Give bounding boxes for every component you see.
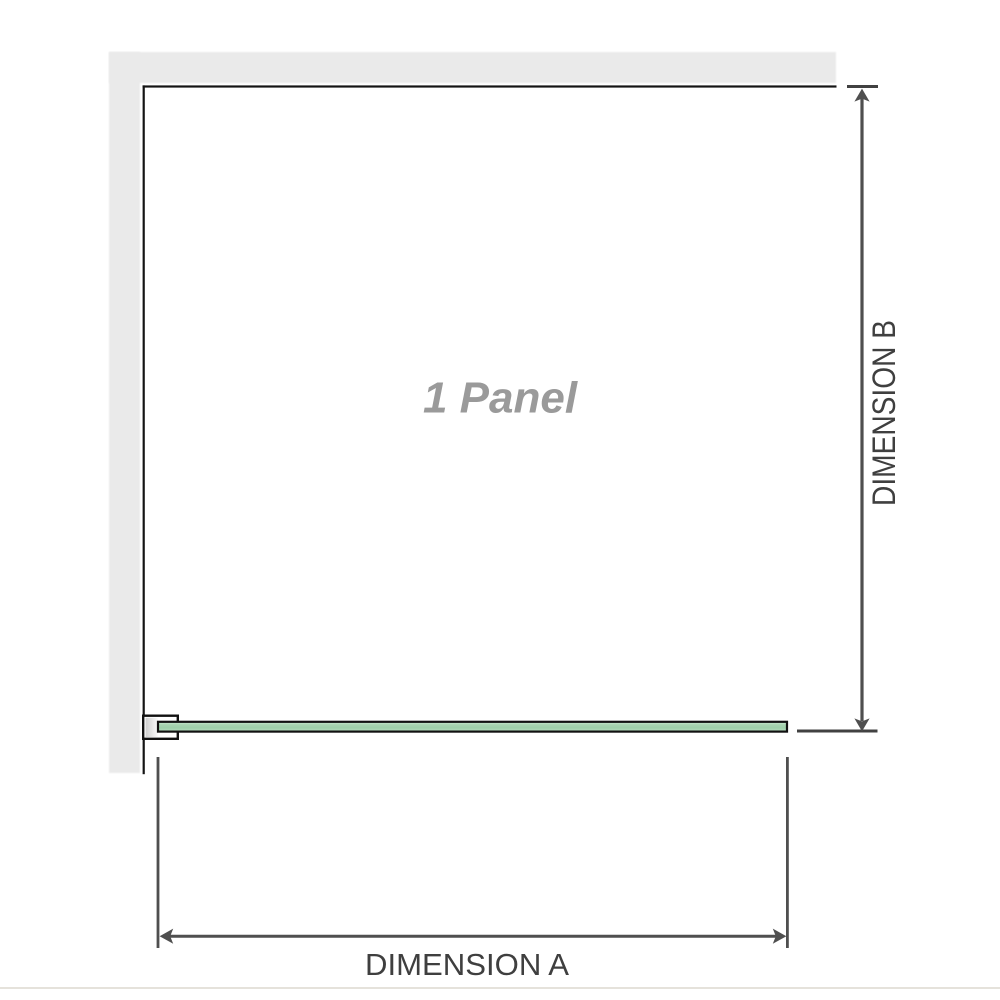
svg-text:1 Panel: 1 Panel: [423, 374, 578, 423]
svg-text:DIMENSION A: DIMENSION A: [365, 947, 569, 982]
svg-text:DIMENSION B: DIMENSION B: [866, 320, 902, 506]
